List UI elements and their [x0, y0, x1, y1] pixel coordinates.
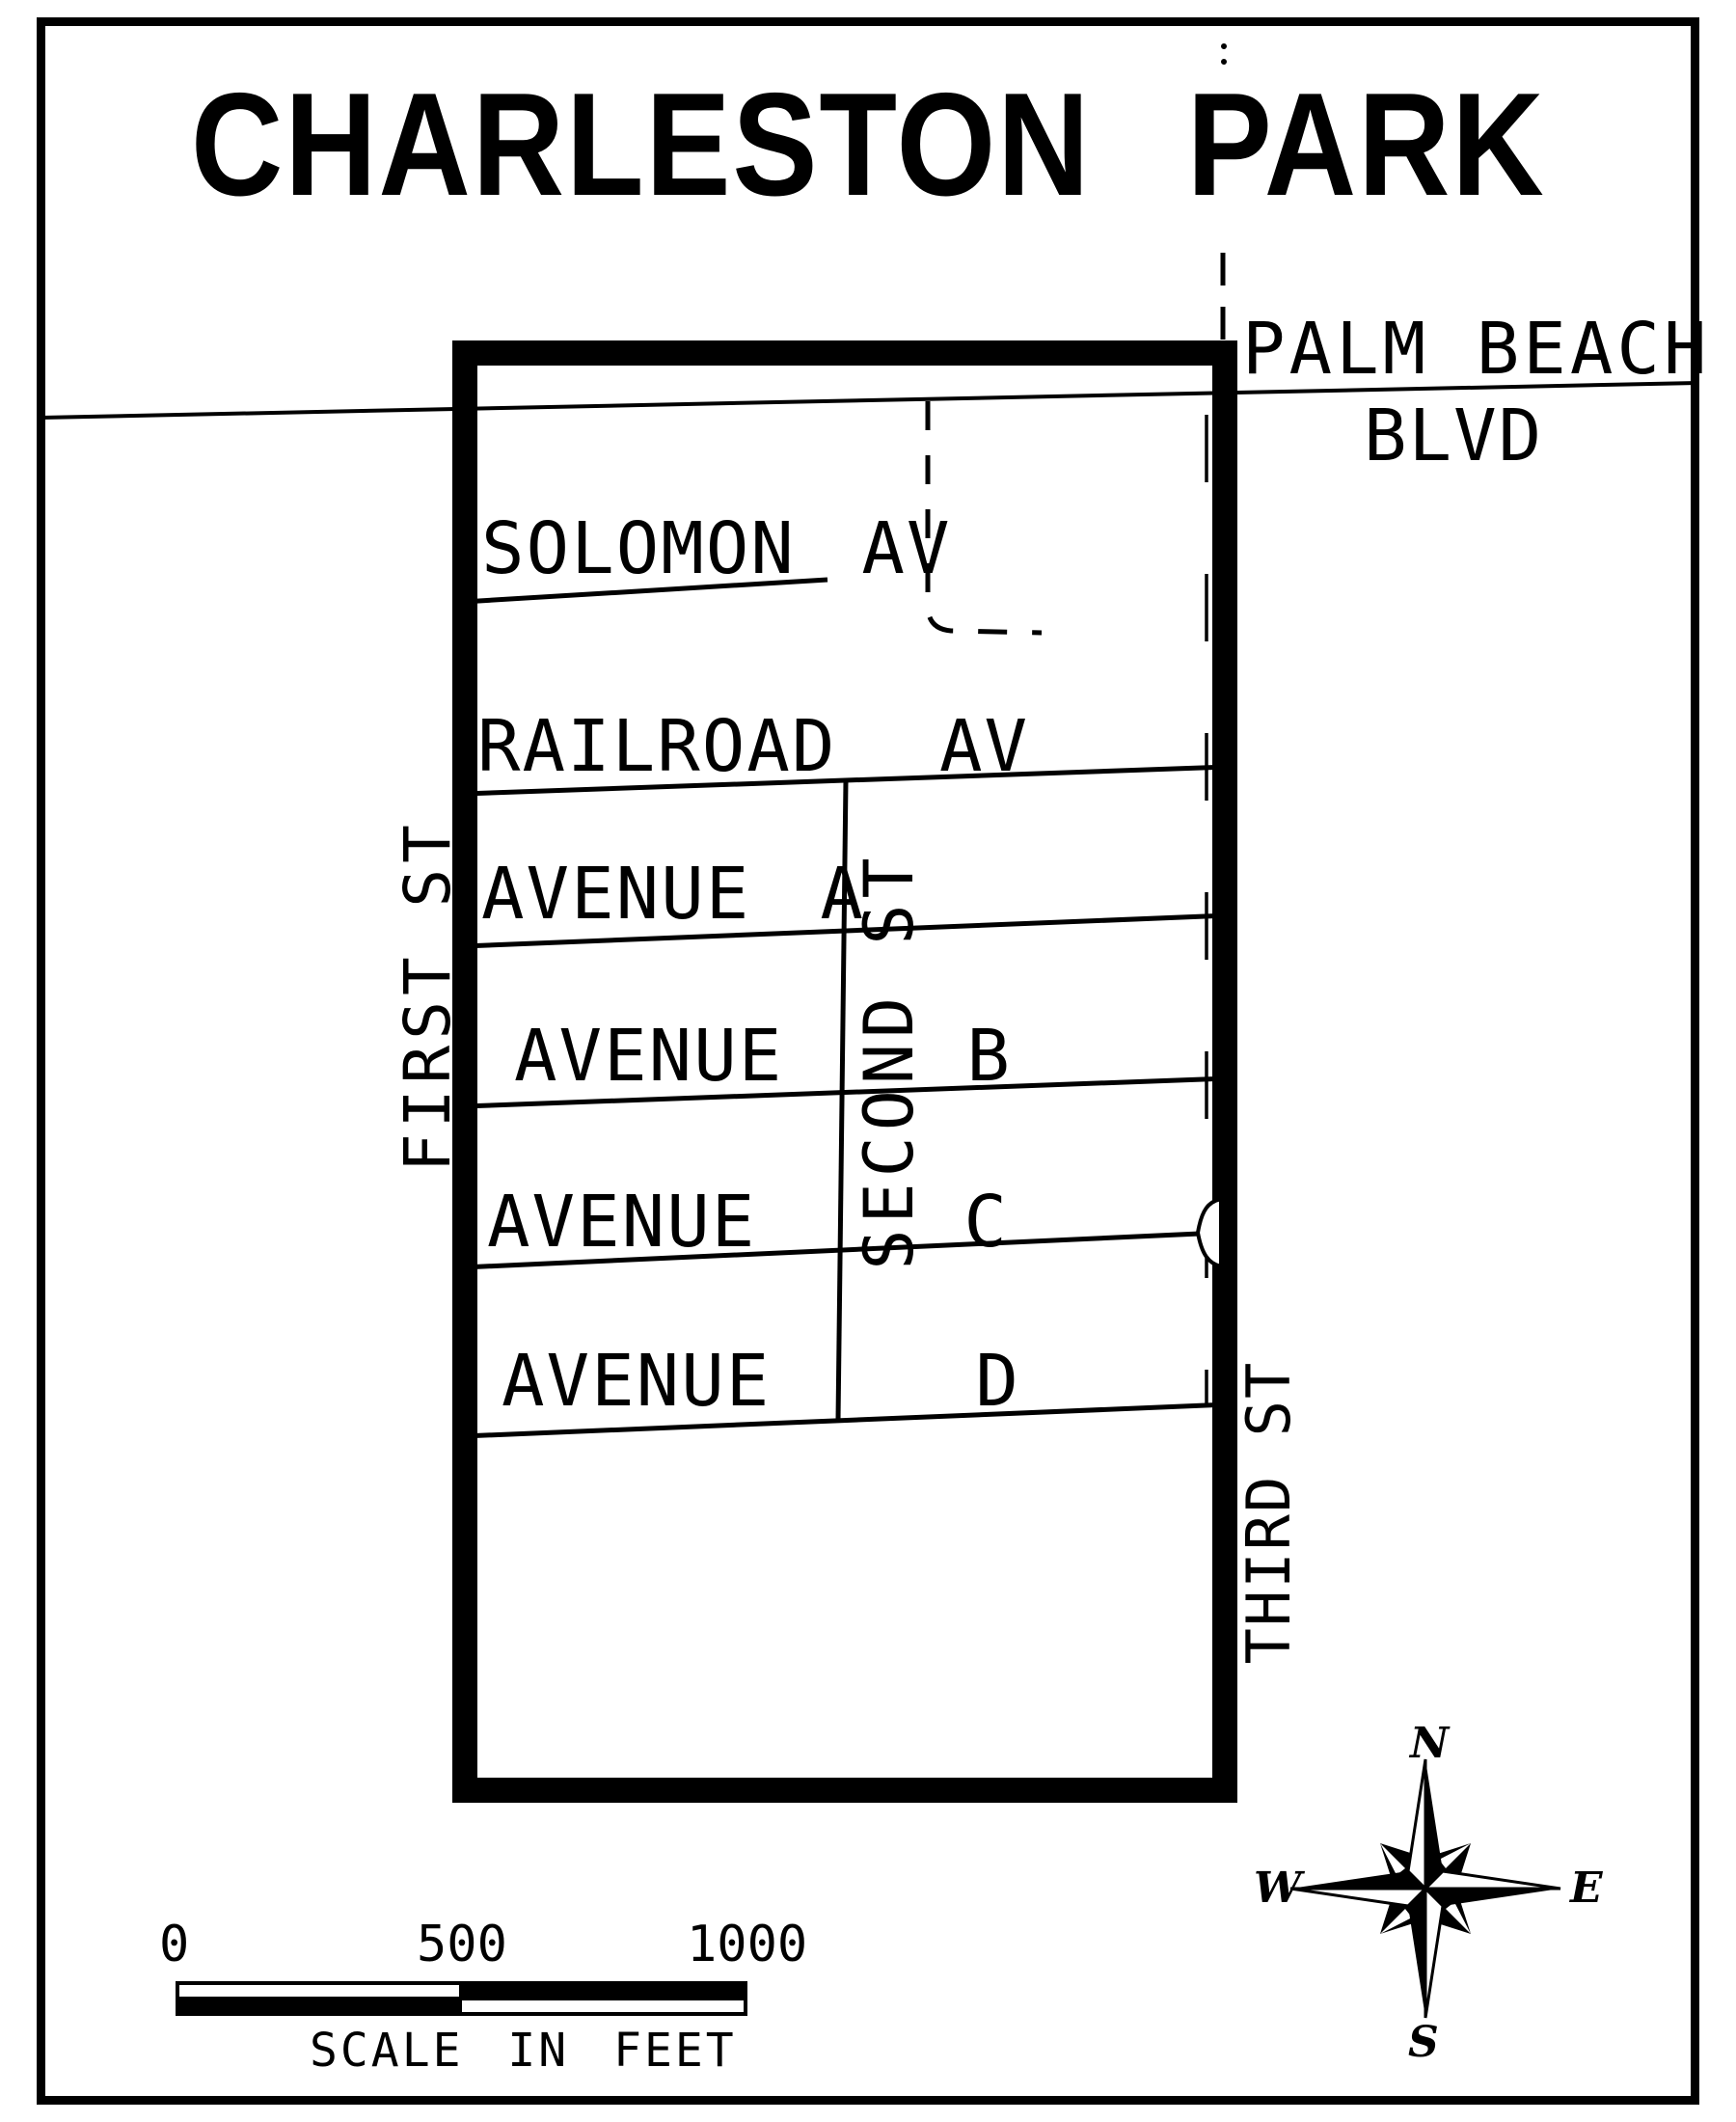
- scale-bar-segment-white-left: [179, 1985, 459, 1997]
- label-avenue-a: AVENUE A: [481, 858, 865, 930]
- label-blvd: BLVD: [1364, 400, 1543, 472]
- compass-label-north: N: [1410, 1723, 1449, 1765]
- avenue-d-letter: D: [975, 1346, 1020, 1417]
- avenue-b-word: AVENUE: [514, 1020, 783, 1092]
- label-railroad-av: RAILROAD AV: [477, 711, 1029, 782]
- map-title: CHARLESTON PARK: [191, 71, 1546, 218]
- label-second-st: SECOND ST: [851, 834, 928, 1288]
- label-avenue-b: AVENUE B: [514, 1020, 1012, 1092]
- scale-tick-1000: 1000: [687, 1919, 807, 1970]
- avenue-c-throat: [1198, 1199, 1221, 1266]
- survey-dot: [1221, 43, 1227, 49]
- avenue-d-word: AVENUE: [502, 1346, 771, 1417]
- plat-map-page: CHARLESTON PARK PALM BEACH BLVD SOLOMON …: [0, 0, 1736, 2122]
- label-solomon-av: SOLOMON AV: [481, 513, 952, 585]
- avenue-c-letter: C: [963, 1186, 1009, 1258]
- avenue-b-letter: B: [966, 1020, 1012, 1092]
- compass-rose: [1290, 1759, 1560, 2018]
- map-title-wrap: CHARLESTON PARK: [0, 71, 1736, 218]
- compass-label-east: E: [1570, 1867, 1603, 1910]
- compass-point-w-white: [1290, 1889, 1425, 1906]
- label-avenue-d: AVENUE D: [502, 1346, 1020, 1417]
- compass-point-e-black: [1425, 1889, 1560, 1906]
- avenue-a-word: AVENUE: [481, 858, 750, 930]
- label-first-st: FIRST ST: [390, 825, 467, 1172]
- scale-tick-500: 500: [417, 1919, 507, 1970]
- avenue-c-word: AVENUE: [487, 1186, 756, 1258]
- scale-caption: SCALE IN FEET: [310, 2027, 737, 2074]
- scale-bar-segment-white-right: [462, 2000, 744, 2012]
- compass-point-w-black: [1290, 1871, 1425, 1889]
- label-palm-beach: PALM BEACH: [1242, 313, 1711, 385]
- compass-point-n-black: [1425, 1759, 1443, 1889]
- scale-bar: [176, 1981, 747, 2016]
- compass-point-n-white: [1408, 1759, 1425, 1889]
- compass-label-west: W: [1254, 1867, 1301, 1910]
- compass-label-south: S: [1408, 2022, 1439, 2064]
- scale-tick-0: 0: [159, 1919, 189, 1970]
- compass-point-s-black: [1408, 1889, 1425, 2018]
- compass-point-s-white: [1425, 1889, 1443, 2018]
- label-third-st: THIRD ST: [1231, 1353, 1308, 1672]
- label-avenue-c: AVENUE C: [487, 1186, 1009, 1258]
- compass-point-e-white: [1425, 1871, 1560, 1889]
